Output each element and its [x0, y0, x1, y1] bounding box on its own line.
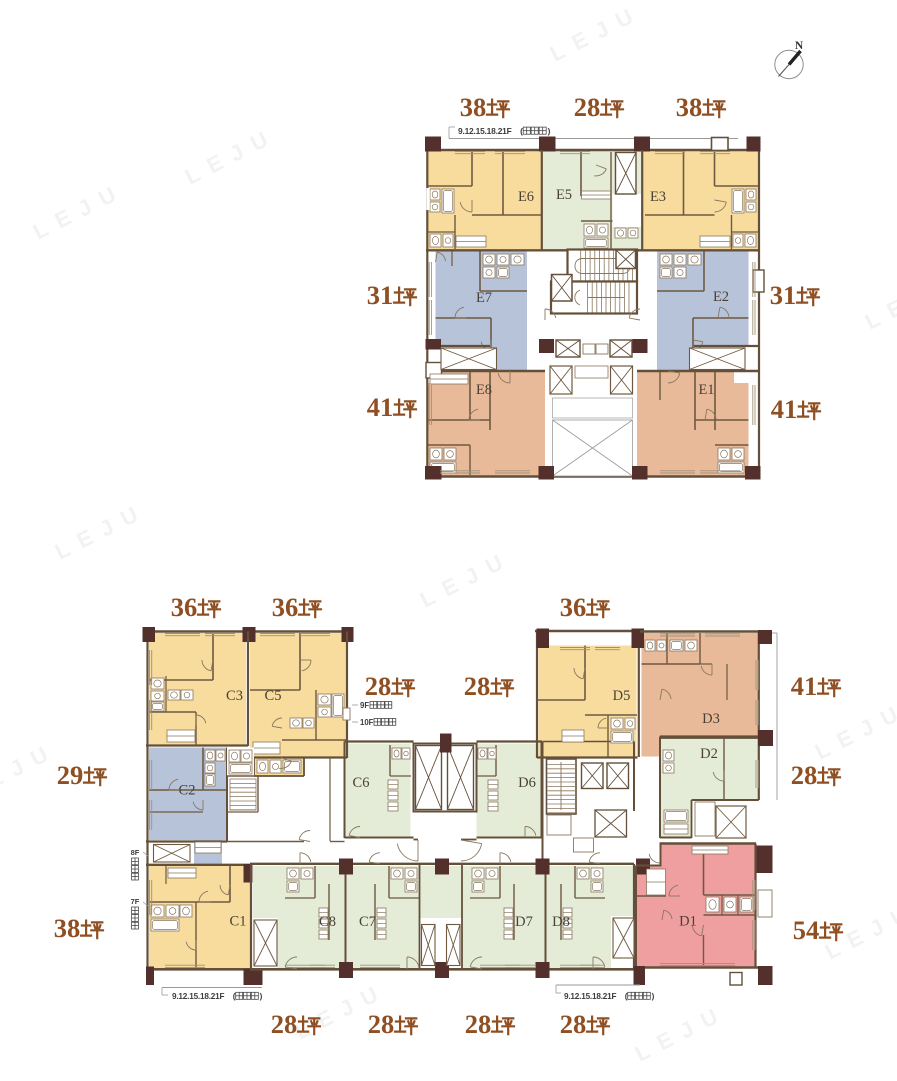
svg-text:): ) [260, 992, 263, 1001]
svg-text:36: 36 [272, 592, 299, 622]
svg-text:41: 41 [771, 394, 798, 424]
svg-text:9.12.15.18.21F: 9.12.15.18.21F [458, 126, 512, 136]
svg-text:9.12.15.18.21F: 9.12.15.18.21F [172, 992, 224, 1001]
svg-text:D3: D3 [702, 711, 720, 727]
svg-text:38: 38 [460, 92, 487, 122]
svg-text:E1: E1 [698, 382, 714, 398]
svg-text:E5: E5 [556, 187, 572, 203]
svg-text:31: 31 [770, 280, 797, 310]
svg-text:28: 28 [464, 671, 491, 701]
svg-text:C2: C2 [179, 783, 196, 799]
svg-text:41: 41 [791, 671, 818, 701]
svg-text:7F: 7F [131, 897, 140, 906]
svg-text:E3: E3 [650, 189, 666, 205]
svg-text:D7: D7 [515, 914, 533, 930]
svg-text:38: 38 [54, 913, 81, 943]
svg-text:36: 36 [171, 592, 198, 622]
svg-text:54: 54 [793, 915, 820, 945]
svg-text:29: 29 [57, 760, 84, 790]
svg-text:N: N [795, 40, 804, 52]
svg-text:10F: 10F [360, 718, 374, 727]
svg-text:36: 36 [560, 592, 587, 622]
svg-text:(: ( [520, 126, 523, 136]
svg-text:28: 28 [560, 1009, 587, 1039]
svg-text:28: 28 [368, 1009, 395, 1039]
svg-text:C3: C3 [226, 688, 243, 704]
svg-text:9F: 9F [360, 701, 369, 710]
svg-text:E7: E7 [476, 290, 492, 306]
svg-text:D2: D2 [700, 746, 718, 762]
svg-text:28: 28 [791, 760, 818, 790]
svg-text:D1: D1 [679, 914, 697, 930]
svg-text:28: 28 [465, 1009, 492, 1039]
svg-text:C6: C6 [353, 775, 370, 791]
svg-text:): ) [548, 126, 551, 136]
svg-text:C1: C1 [230, 914, 247, 930]
svg-text:9.12.15.18.21F: 9.12.15.18.21F [564, 992, 616, 1001]
svg-text:28: 28 [365, 671, 392, 701]
svg-text:31: 31 [367, 280, 394, 310]
svg-text:28: 28 [574, 92, 601, 122]
svg-text:(: ( [233, 992, 236, 1001]
svg-text:E6: E6 [518, 189, 534, 205]
svg-text:8F: 8F [131, 848, 140, 857]
svg-text:28: 28 [271, 1009, 298, 1039]
svg-text:C8: C8 [319, 914, 336, 930]
svg-text:C7: C7 [359, 914, 376, 930]
svg-text:C5: C5 [265, 688, 282, 704]
svg-text:(: ( [625, 992, 628, 1001]
svg-text:D8: D8 [552, 914, 570, 930]
svg-text:41: 41 [367, 392, 394, 422]
svg-text:38: 38 [676, 92, 703, 122]
svg-text:E2: E2 [713, 289, 729, 305]
svg-text:E8: E8 [476, 382, 492, 398]
svg-text:D5: D5 [613, 688, 631, 704]
svg-text:): ) [652, 992, 655, 1001]
svg-text:D6: D6 [518, 775, 536, 791]
